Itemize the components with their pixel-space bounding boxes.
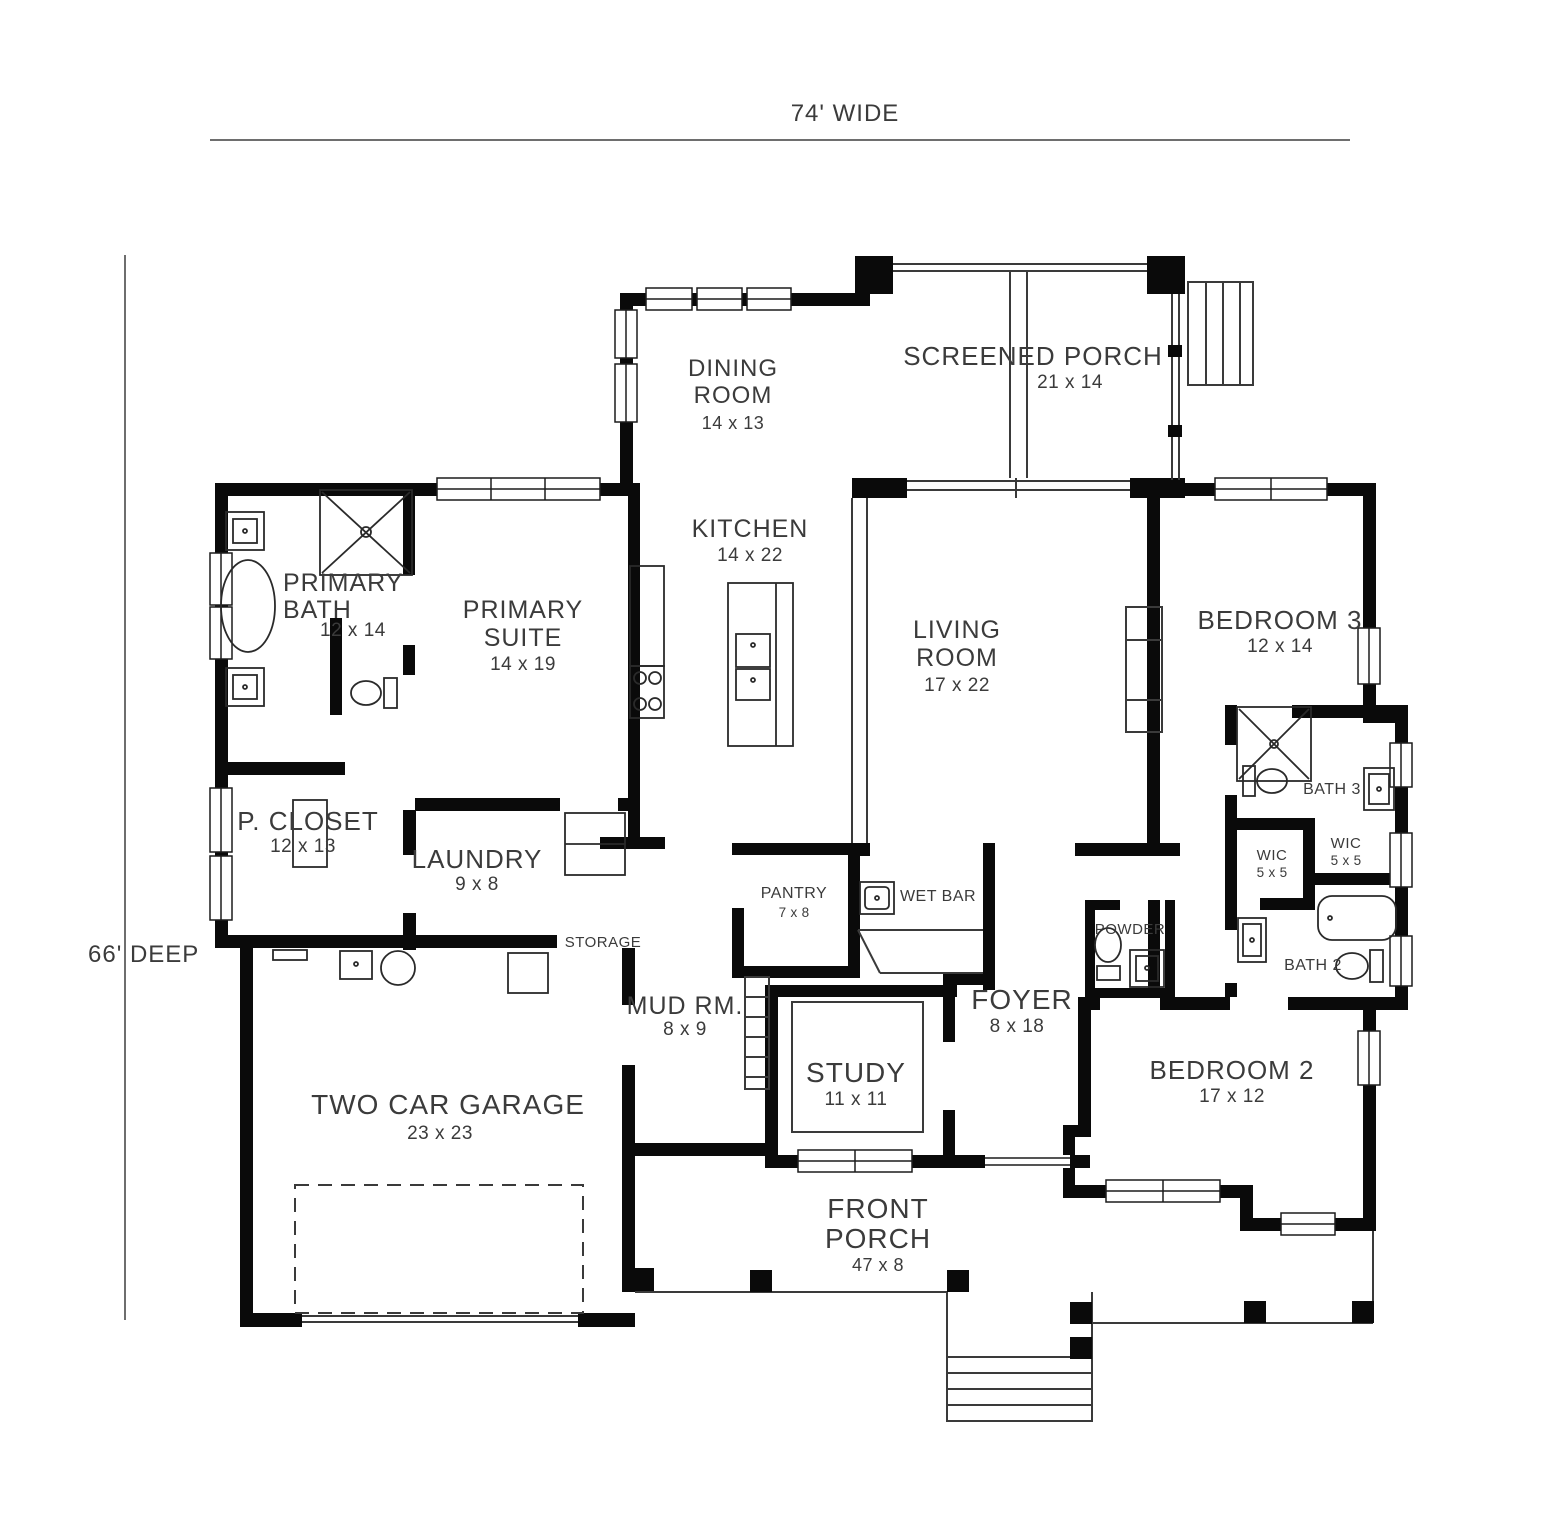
room-dims-dining: 14 x 13 (702, 414, 765, 433)
room-label-garage: TWO CAR GARAGE (311, 1090, 585, 1119)
room-label-powder: POWDER (1095, 922, 1166, 938)
wet-bar-counter (858, 930, 983, 973)
room-label-storage: STORAGE (565, 935, 642, 951)
room-dims-bedroom2: 17 x 12 (1199, 1087, 1265, 1107)
window-bedroom3-right (1358, 628, 1380, 684)
windows-bedroom2-bottom (1106, 1180, 1335, 1235)
room-label-bedroom2: BEDROOM 2 (1149, 1057, 1314, 1084)
vanity-primary-1 (226, 512, 264, 550)
room-label-wet-bar: WET BAR (900, 889, 976, 906)
garage-utilities (273, 950, 548, 993)
room-label-living-line2: ROOM (916, 645, 998, 671)
room-dims-kitchen: 14 x 22 (717, 546, 783, 566)
room-label-dining-line1: DINING (688, 356, 778, 381)
window-dining-top (646, 288, 791, 310)
room-label-bedroom3: BEDROOM 3 (1197, 607, 1362, 634)
room-label-primary-bath-line1: PRIMARY (283, 570, 403, 596)
room-label-pantry: PANTRY (761, 886, 827, 903)
front-porch-edge (635, 1231, 1373, 1421)
floor-plan-drawing (0, 0, 1545, 1530)
room-label-wic-upper: WIC (1331, 836, 1362, 852)
room-label-primary-suite-line2: SUITE (484, 625, 563, 651)
room-dims-garage: 23 x 23 (407, 1124, 473, 1144)
room-dims-wic-upper: 5 x 5 (1331, 854, 1362, 868)
vanity-bath2 (1238, 918, 1266, 962)
room-dims-living: 17 x 22 (924, 676, 990, 696)
bathtub-primary (221, 560, 275, 652)
washer-dryer (565, 813, 625, 875)
kitchen-island (728, 583, 793, 746)
room-dims-primary-bath: 12 x 14 (320, 621, 386, 641)
wet-bar-sink (860, 882, 894, 914)
room-label-front-porch-line1: FRONT (827, 1194, 928, 1223)
room-label-screened-porch: SCREENED PORCH (903, 343, 1163, 370)
window-suite-top (437, 478, 600, 500)
room-dims-mud-room: 8 x 9 (663, 1020, 707, 1040)
shower-primary (320, 490, 412, 575)
window-bedroom3-top (1215, 478, 1327, 500)
vanity-primary-2 (226, 668, 264, 706)
room-label-laundry: LAUNDRY (412, 846, 543, 873)
window-dining-left (615, 310, 637, 422)
room-dims-bedroom3: 12 x 14 (1247, 637, 1313, 657)
room-label-bath3: BATH 3 (1303, 782, 1361, 799)
vanity-bath3 (1364, 768, 1394, 810)
room-label-foyer: FOYER (971, 985, 1072, 1014)
room-dims-primary-suite: 14 x 19 (490, 655, 556, 675)
room-dims-laundry: 9 x 8 (455, 875, 499, 895)
room-label-dining-line2: ROOM (694, 383, 773, 408)
room-dims-study: 11 x 11 (824, 1090, 887, 1110)
room-label-bath2: BATH 2 (1284, 958, 1342, 975)
room-label-study: STUDY (806, 1058, 906, 1087)
porch-steps-upper (1188, 282, 1253, 385)
room-dims-wic-lower: 5 x 5 (1257, 866, 1288, 880)
window-study-bottom (798, 1150, 912, 1172)
room-label-front-porch-line2: PORCH (825, 1224, 931, 1253)
room-dims-pantry: 7 x 8 (779, 906, 810, 920)
dimension-width-label: 74' WIDE (791, 101, 900, 126)
room-label-wic-lower: WIC (1257, 848, 1288, 864)
room-label-primary-suite-line1: PRIMARY (463, 597, 583, 623)
room-dims-p-closet: 12 x 13 (270, 837, 336, 857)
room-dims-screened-porch: 21 x 14 (1037, 373, 1103, 393)
floor-plan-page: 74' WIDE 66' DEEP DINING ROOM 14 x 13 SC… (0, 0, 1545, 1530)
room-label-kitchen: KITCHEN (692, 516, 809, 542)
toilet-primary (351, 678, 397, 708)
toilet-bath2 (1336, 950, 1383, 982)
room-dims-front-porch: 47 x 8 (852, 1256, 904, 1275)
window-bedroom2-right (1358, 1031, 1380, 1085)
tub-bath2 (1318, 896, 1396, 940)
room-dims-foyer: 8 x 18 (990, 1017, 1045, 1037)
garage-door (295, 1185, 583, 1322)
room-label-mud-room: MUD RM. (627, 993, 744, 1019)
room-label-living-line1: LIVING (913, 617, 1001, 643)
room-label-p-closet: P. CLOSET (237, 808, 378, 835)
dimension-depth-label: 66' DEEP (88, 942, 199, 967)
